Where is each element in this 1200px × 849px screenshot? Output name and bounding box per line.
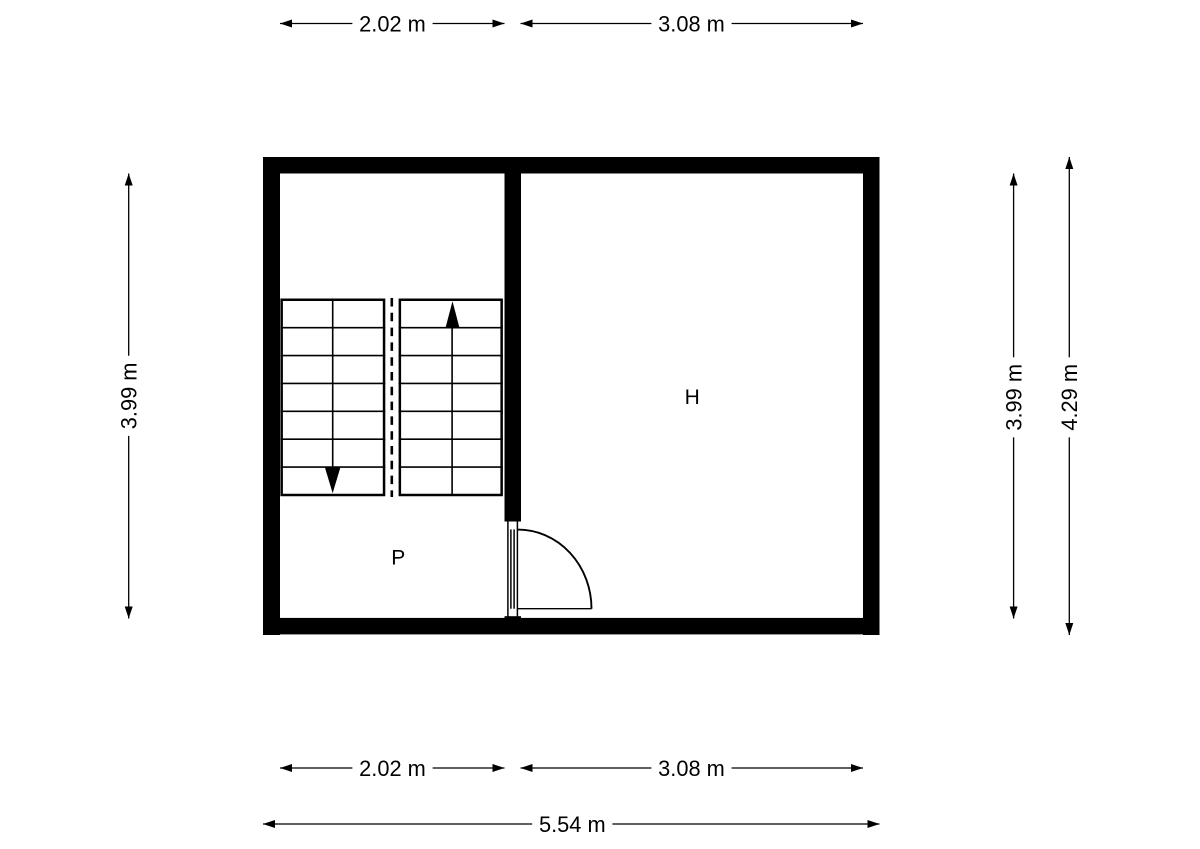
svg-text:3.08 m: 3.08 m <box>658 756 725 781</box>
svg-text:2.02 m: 2.02 m <box>359 12 426 37</box>
svg-text:3.99 m: 3.99 m <box>1001 364 1026 431</box>
svg-text:4.29 m: 4.29 m <box>1057 364 1082 431</box>
svg-text:2.02 m: 2.02 m <box>359 756 426 781</box>
svg-text:H: H <box>685 386 700 409</box>
svg-text:P: P <box>391 547 405 570</box>
svg-text:5.54 m: 5.54 m <box>539 812 606 837</box>
svg-text:3.08 m: 3.08 m <box>658 12 725 37</box>
svg-text:3.99 m: 3.99 m <box>117 363 142 430</box>
